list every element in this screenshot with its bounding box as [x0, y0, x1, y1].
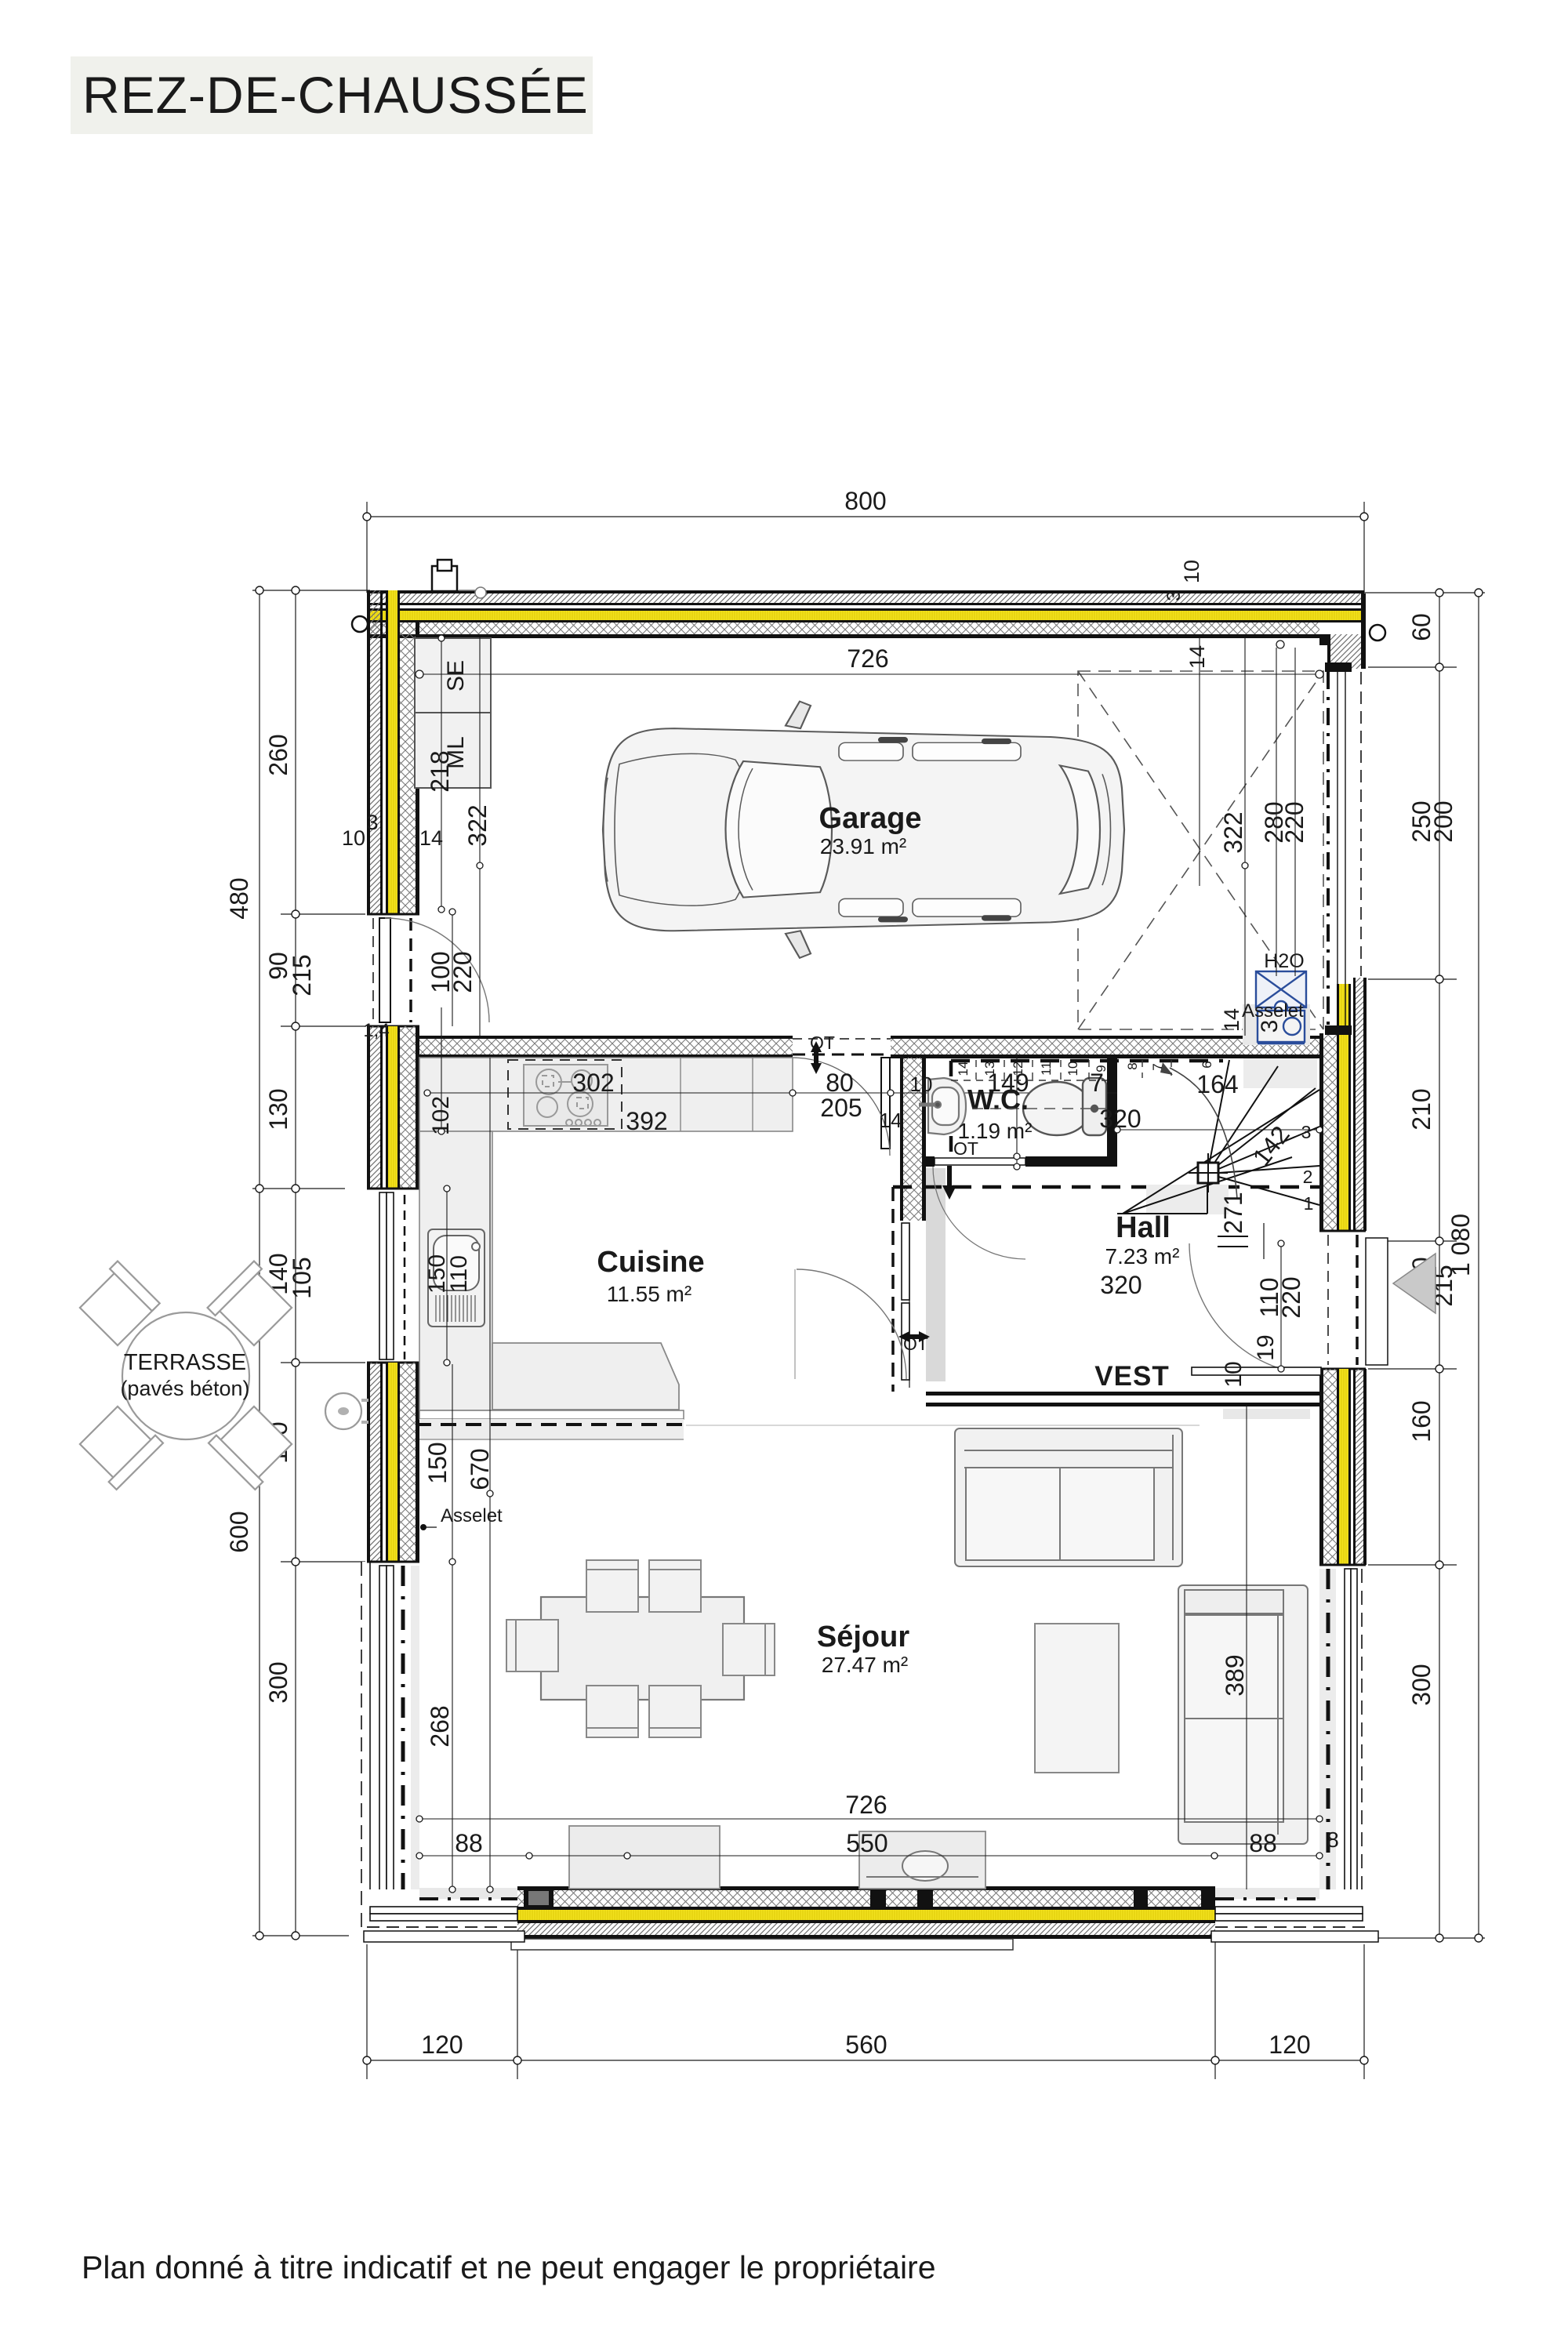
svg-text:10: 10 [1180, 560, 1203, 583]
svg-text:302: 302 [572, 1069, 614, 1097]
svg-text:14: 14 [956, 1062, 971, 1076]
svg-text:800: 800 [844, 487, 886, 515]
svg-text:3: 3 [1163, 590, 1185, 601]
svg-text:164: 164 [1196, 1070, 1238, 1098]
svg-text:3: 3 [366, 811, 378, 834]
svg-text:80: 80 [826, 1069, 854, 1097]
svg-text:88: 88 [455, 1829, 483, 1857]
svg-text:10: 10 [910, 1073, 933, 1096]
svg-text:142: 142 [1247, 1120, 1295, 1171]
svg-text:Séjour: Séjour [817, 1621, 909, 1653]
svg-text:1,4: 1,4 [363, 1020, 389, 1041]
svg-text:9: 9 [1094, 1065, 1109, 1072]
svg-text:215: 215 [288, 954, 316, 996]
svg-text:(pavés béton): (pavés béton) [120, 1377, 249, 1400]
svg-text:218: 218 [426, 750, 454, 792]
svg-text:SE: SE [443, 660, 469, 691]
svg-text:19: 19 [1253, 1334, 1279, 1360]
svg-text:300: 300 [1407, 1664, 1436, 1705]
svg-text:110: 110 [446, 1255, 472, 1293]
svg-text:6: 6 [1200, 1061, 1214, 1068]
svg-text:REZ-DE-CHAUSSÉE: REZ-DE-CHAUSSÉE [82, 66, 589, 124]
svg-text:670: 670 [466, 1448, 494, 1490]
svg-text:322: 322 [463, 804, 492, 846]
svg-text:600: 600 [225, 1511, 253, 1552]
svg-text:389: 389 [1221, 1654, 1249, 1696]
svg-text:13: 13 [982, 1062, 997, 1076]
svg-text:7.23 m²: 7.23 m² [1105, 1244, 1180, 1269]
svg-text:14: 14 [419, 826, 443, 850]
svg-text:300: 300 [264, 1661, 292, 1703]
svg-text:271: 271 [1219, 1192, 1247, 1233]
svg-text:11.55 m²: 11.55 m² [607, 1282, 691, 1306]
svg-text:Plan donné à titre indicatif e: Plan donné à titre indicatif et ne peut … [82, 2249, 936, 2285]
svg-text:480: 480 [225, 877, 253, 919]
svg-text:14: 14 [880, 1109, 902, 1132]
svg-text:392: 392 [626, 1107, 667, 1135]
svg-text:27.47 m²: 27.47 m² [822, 1653, 909, 1677]
svg-text:120: 120 [1269, 2031, 1310, 2059]
svg-text:726: 726 [847, 644, 888, 673]
svg-text:TERRASSE: TERRASSE [124, 1350, 246, 1375]
svg-text:VEST: VEST [1094, 1361, 1169, 1392]
svg-text:1: 1 [1304, 1193, 1314, 1214]
svg-text:Cuisine: Cuisine [597, 1246, 704, 1279]
svg-text:220: 220 [1280, 801, 1308, 843]
svg-text:3: 3 [1301, 1122, 1312, 1142]
svg-text:10: 10 [342, 826, 365, 850]
svg-text:160: 160 [1407, 1400, 1436, 1442]
svg-text:200: 200 [1429, 800, 1457, 842]
svg-text:10: 10 [1221, 1361, 1247, 1387]
svg-text:14: 14 [1220, 1008, 1243, 1032]
svg-text:Asselet: Asselet [441, 1505, 503, 1526]
svg-text:10: 10 [1065, 1062, 1080, 1076]
svg-text:Hall: Hall [1116, 1211, 1171, 1244]
svg-text:12: 12 [1011, 1062, 1025, 1076]
svg-text:Garage: Garage [819, 802, 922, 835]
svg-text:60: 60 [1407, 613, 1436, 641]
svg-text:268: 268 [426, 1705, 454, 1747]
svg-text:8: 8 [1327, 1828, 1339, 1852]
svg-text:102: 102 [428, 1096, 454, 1135]
svg-text:130: 130 [264, 1088, 292, 1130]
svg-text:OT: OT [953, 1138, 978, 1159]
svg-text:1 080: 1 080 [1446, 1214, 1475, 1276]
svg-text:726: 726 [845, 1791, 887, 1819]
svg-text:2: 2 [1303, 1167, 1313, 1187]
svg-text:150: 150 [423, 1442, 452, 1483]
svg-text:550: 550 [846, 1829, 887, 1857]
svg-text:14: 14 [1185, 645, 1209, 669]
svg-text:120: 120 [421, 2031, 463, 2059]
svg-text:Asselet: Asselet [1242, 1000, 1304, 1022]
svg-text:322: 322 [1219, 811, 1247, 853]
svg-text:260: 260 [264, 734, 292, 775]
svg-text:23.91 m²: 23.91 m² [820, 834, 907, 858]
svg-text:220: 220 [1277, 1276, 1305, 1318]
svg-text:88: 88 [1249, 1829, 1277, 1857]
svg-text:220: 220 [448, 951, 477, 993]
svg-text:H2O: H2O [1264, 950, 1304, 972]
svg-text:210: 210 [1407, 1088, 1436, 1130]
svg-text:11: 11 [1039, 1062, 1054, 1076]
svg-text:7: 7 [1150, 1063, 1165, 1070]
svg-text:205: 205 [820, 1094, 862, 1122]
svg-text:560: 560 [845, 2031, 887, 2059]
svg-text:3: 3 [1257, 1020, 1283, 1033]
svg-text:105: 105 [288, 1257, 316, 1298]
svg-text:320: 320 [1100, 1271, 1142, 1299]
svg-text:8: 8 [1125, 1062, 1140, 1069]
